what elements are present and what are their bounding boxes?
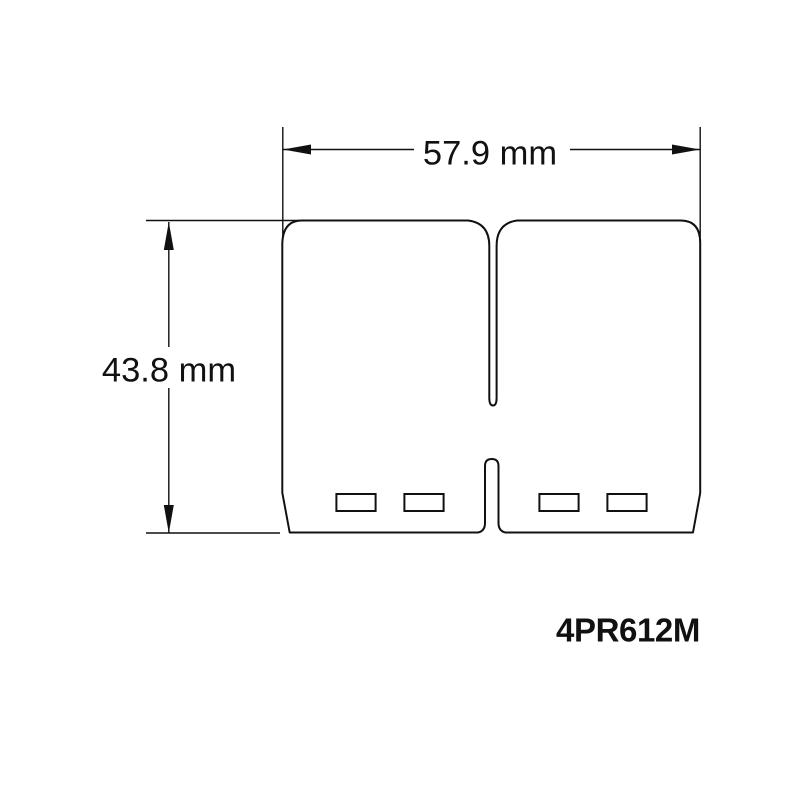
svg-text:4PR612M: 4PR612M bbox=[556, 612, 700, 649]
svg-text:57.9 mm: 57.9 mm bbox=[423, 134, 557, 172]
svg-text:43.8 mm: 43.8 mm bbox=[102, 352, 236, 390]
